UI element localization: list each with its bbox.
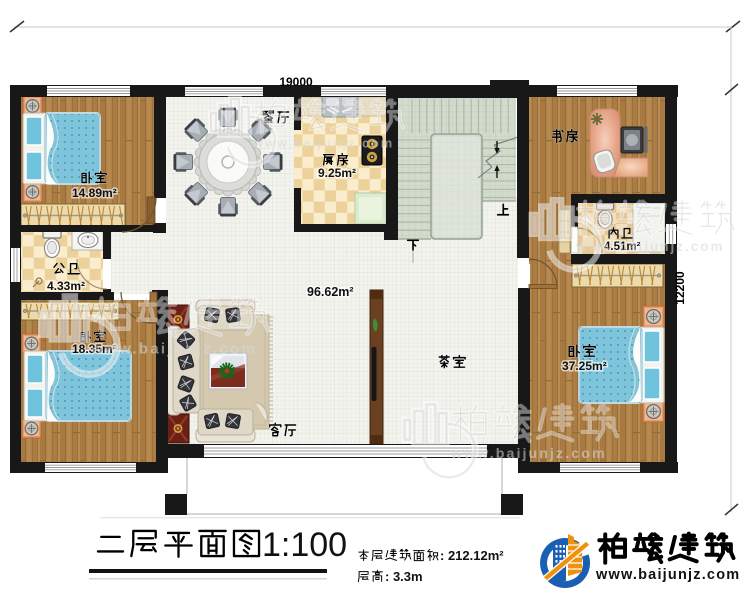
svg-text:9.25m²: 9.25m² [318, 166, 356, 180]
svg-text:12200: 12200 [673, 271, 687, 305]
svg-text:www.baijunjz.com: www.baijunjz.com [252, 135, 394, 150]
svg-text:14.89m²: 14.89m² [72, 186, 117, 200]
svg-text:: 3.3m: : 3.3m [385, 569, 423, 584]
svg-text:www.baijunjz.com: www.baijunjz.com [575, 239, 725, 254]
svg-text:19000: 19000 [279, 75, 313, 89]
svg-text:www.baijunjz.com: www.baijunjz.com [595, 567, 740, 583]
svg-text:37.25m²: 37.25m² [562, 359, 607, 373]
svg-text:www.baijunjz.com: www.baijunjz.com [90, 341, 257, 358]
svg-text:1:100: 1:100 [262, 526, 347, 564]
svg-text:: 212.12m²: : 212.12m² [440, 548, 504, 563]
svg-text:96.62m²: 96.62m² [307, 285, 354, 299]
svg-text:4.33m²: 4.33m² [47, 279, 85, 293]
svg-text:www.baijunjz.com: www.baijunjz.com [450, 446, 607, 462]
